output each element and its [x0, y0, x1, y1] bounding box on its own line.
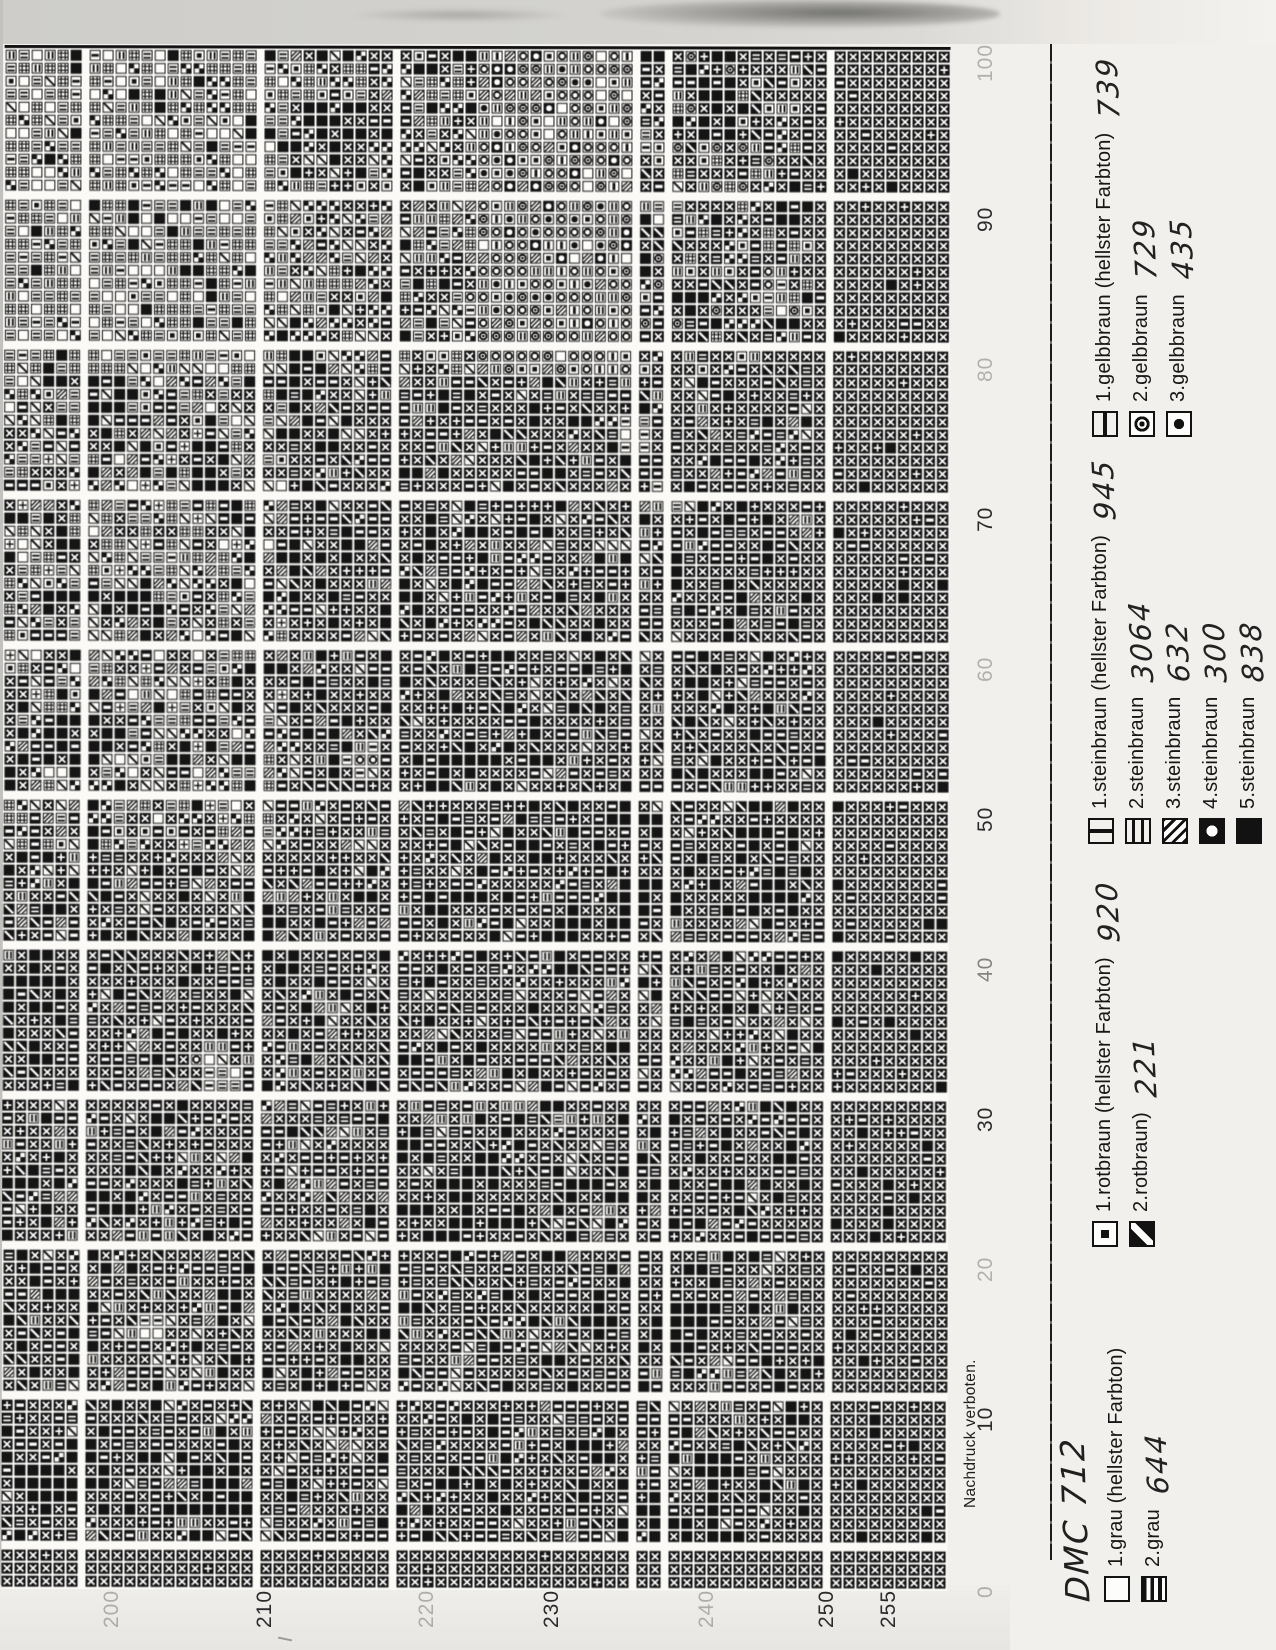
- legend-entry-label: 3.steinbraun: [1163, 697, 1186, 809]
- axis-label: 50: [974, 807, 998, 832]
- legend-entry: 3.gelbbraun435: [1160, 56, 1197, 437]
- color-legend-inner: DMC 7121.grau (hellster Farbton)2.grau64…: [1052, 0, 1276, 1650]
- legend-entry-code-handwritten: 644: [1138, 1432, 1175, 1496]
- legend-entry: 1.grau (hellster Farbton): [1098, 1347, 1135, 1602]
- legend-entry-label: 2.steinbraun: [1126, 697, 1149, 809]
- legend-entry: 2.steinbraun3064: [1119, 459, 1156, 844]
- legend-entry: 2.gelbbraun729: [1123, 56, 1160, 437]
- axis-label: 20: [974, 1257, 998, 1282]
- axis-label: 210: [253, 1590, 277, 1628]
- axis-label: 70: [974, 507, 998, 532]
- scanned-pattern-page: 1009080706050403020100 20021022023024025…: [0, 0, 1276, 1650]
- stitch-chart-grid: [1, 45, 950, 1591]
- axis-label: 30: [974, 1107, 998, 1132]
- legend-entry-label: 1.steinbraun (hellster Farbton): [1089, 535, 1112, 809]
- legend-entry: 1.rotbraun (hellster Farbton)920: [1086, 881, 1123, 1247]
- legend-entry: 3.steinbraun632: [1156, 459, 1193, 844]
- scan-artifact: [600, 0, 1000, 28]
- legend-entry-code-handwritten: 300: [1196, 619, 1233, 683]
- legend-entry: 2.grau644: [1135, 1347, 1172, 1602]
- legend-entry-code-handwritten: 838: [1233, 619, 1270, 683]
- legend-entry-code-handwritten: 945: [1085, 458, 1122, 522]
- square-diagonal-hatch-icon: [1162, 818, 1188, 844]
- legend-entry-label: 2.grau: [1142, 1509, 1165, 1567]
- axis-label: 90: [974, 207, 998, 232]
- square-hstripes-icon: [1141, 1576, 1167, 1602]
- legend-entry-code-handwritten: 3064: [1121, 599, 1159, 683]
- legend-entry-code-handwritten: 435: [1163, 217, 1200, 281]
- square-vbar-icon: [1088, 818, 1114, 844]
- axis-label: 200: [100, 1590, 124, 1628]
- square-center-square-icon: [1092, 1221, 1118, 1247]
- scan-artifact: [350, 8, 570, 22]
- black-white-circle-icon: [1199, 818, 1225, 844]
- legend-group-steinbraun: 1.steinbraun (hellster Farbton)9452.stei…: [1052, 459, 1276, 844]
- legend-brand-heading: DMC 712: [1049, 1346, 1102, 1603]
- legend-entry: 5.steinbraun838: [1230, 459, 1267, 844]
- legend-entry-label: 1.rotbraun (hellster Farbton): [1093, 957, 1116, 1212]
- square-filled-dot-icon: [1166, 411, 1192, 437]
- axis-label: 230: [540, 1590, 564, 1628]
- axis-label: 255: [877, 1590, 901, 1628]
- legend-entry-label: 2.gelbbraun: [1130, 294, 1153, 402]
- legend-entry-label: 3.gelbbraun: [1167, 294, 1190, 402]
- legend-entry-code-handwritten: 632: [1159, 619, 1196, 683]
- legend-entry-label: 2.rotbraun): [1130, 1112, 1153, 1212]
- legend-entry-label: 5.steinbraun: [1237, 697, 1260, 809]
- axis-label: 220: [415, 1590, 439, 1628]
- legend-entry-label: 1.gelbbraun (hellster Farbton): [1093, 133, 1116, 402]
- legend-entry-code-handwritten: 920: [1089, 880, 1126, 944]
- legend-group-rotbraun: 1.rotbraun (hellster Farbton)9202.rotbra…: [1052, 881, 1276, 1247]
- color-legend: DMC 7121.grau (hellster Farbton)2.grau64…: [1052, 0, 1276, 1650]
- axis-label: 250: [815, 1590, 839, 1628]
- legend-entry-code-handwritten: 729: [1126, 217, 1163, 281]
- square-empty-icon: [1104, 1576, 1130, 1602]
- legend-entry: 1.steinbraun (hellster Farbton)945: [1082, 459, 1119, 844]
- axis-label: 240: [695, 1590, 719, 1628]
- legend-entry: 1.gelbbraun (hellster Farbton)739: [1086, 56, 1123, 437]
- legend-group-gelbbraun: 1.gelbbraun (hellster Farbton)7392.gelbb…: [1052, 56, 1276, 437]
- square-ring-dot-icon: [1129, 411, 1155, 437]
- axis-label: 100: [974, 44, 998, 82]
- copyright-note: Nachdruck verboten.: [962, 1359, 980, 1508]
- axis-label: 60: [974, 657, 998, 682]
- square-two-hlines-icon: [1125, 818, 1151, 844]
- square-hbar-icon: [1092, 411, 1118, 437]
- black-white-diagonal-icon: [1129, 1221, 1155, 1247]
- axis-label: 0: [974, 1585, 998, 1598]
- legend-entry: 2.rotbraun)221: [1123, 881, 1160, 1247]
- legend-entry: 4.steinbraun300: [1193, 459, 1230, 844]
- legend-entry-label: 4.steinbraun: [1200, 697, 1223, 809]
- axis-label: 80: [974, 357, 998, 382]
- legend-entry-code-handwritten: 739: [1089, 55, 1126, 119]
- axis-label: 40: [974, 957, 998, 982]
- legend-entry-label: 1.grau (hellster Farbton): [1105, 1347, 1128, 1567]
- legend-group-grau: DMC 7121.grau (hellster Farbton)2.grau64…: [1052, 1347, 1276, 1602]
- square-solid-icon: [1236, 818, 1262, 844]
- legend-entry-code-handwritten: 221: [1126, 1035, 1163, 1099]
- scan-bottom-margin: [0, 1585, 1010, 1650]
